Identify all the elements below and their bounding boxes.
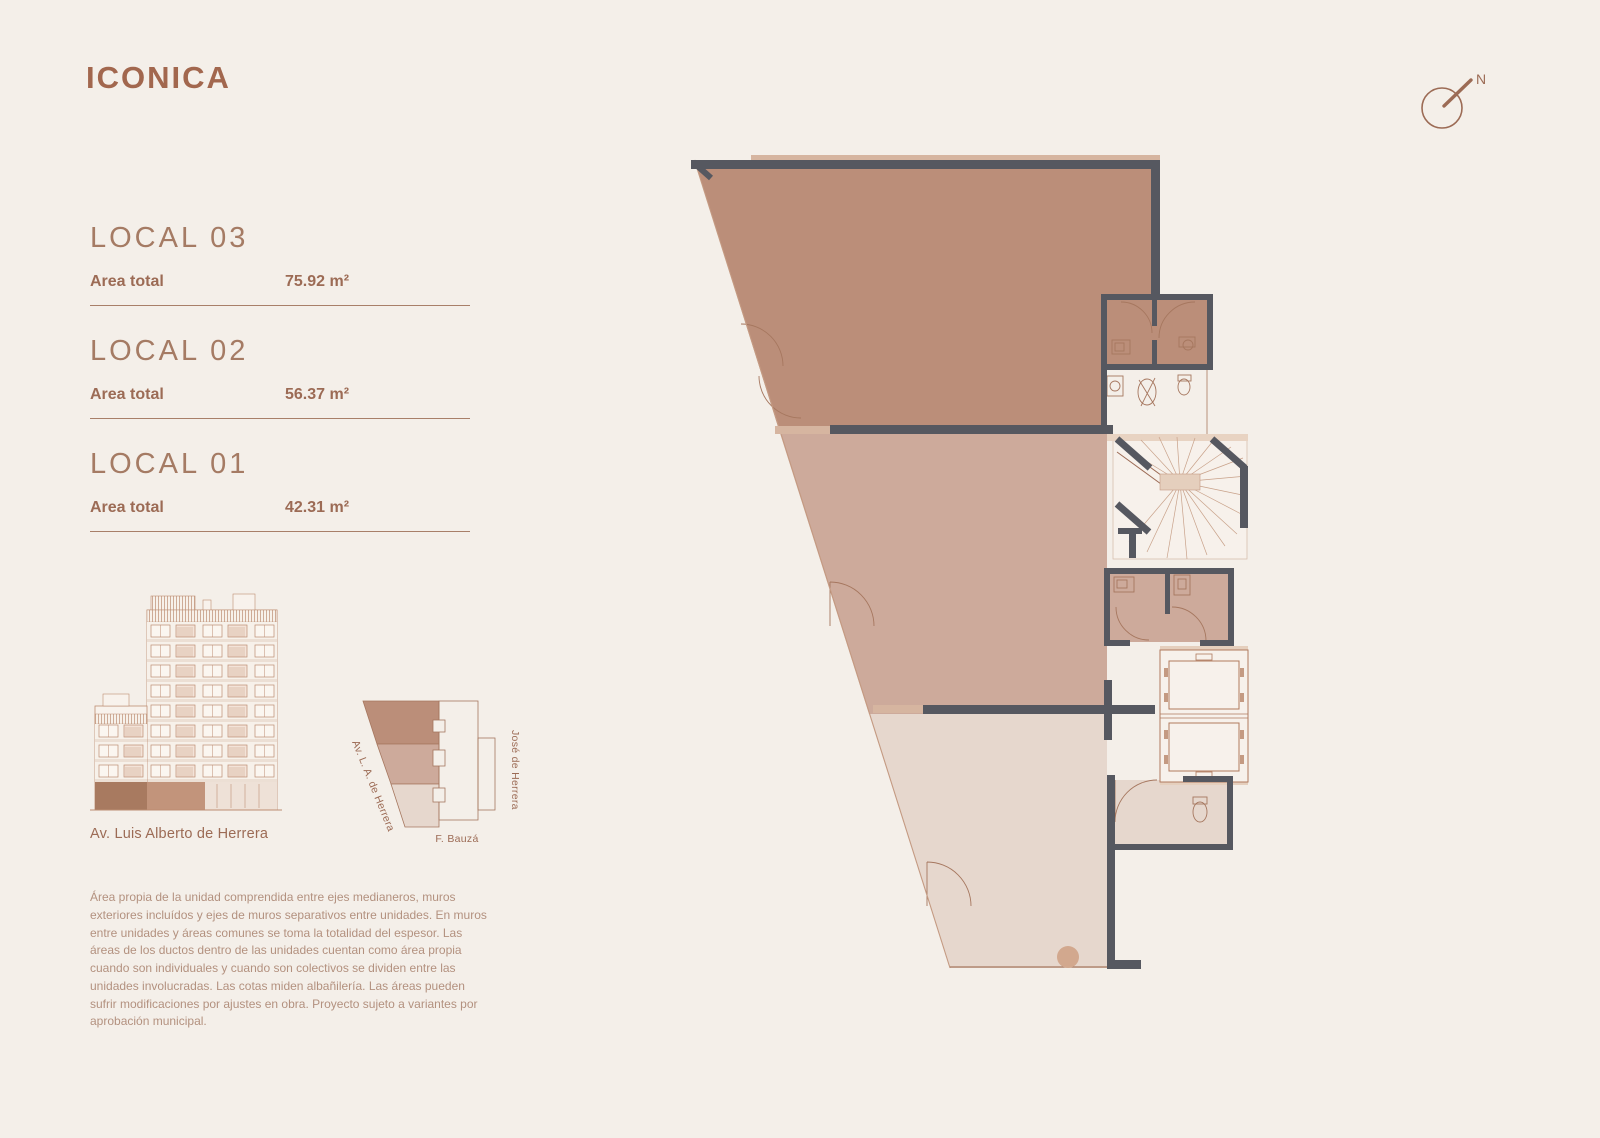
compass-needle <box>1444 80 1471 106</box>
area-row: Area total 75.92 m² <box>90 273 470 306</box>
stair-landing <box>1160 474 1200 490</box>
area-value: 75.92 m² <box>285 273 349 291</box>
street-label-right: José de Herrera <box>509 730 521 810</box>
elevators <box>1160 646 1248 785</box>
storefronts <box>95 782 277 810</box>
area-label: Area total <box>90 499 164 516</box>
local-01-area <box>869 714 1107 968</box>
local-02-area <box>779 430 1107 714</box>
elevation-caption: Av. Luis Alberto de Herrera <box>90 826 268 842</box>
area-row: Area total 56.37 m² <box>90 386 470 419</box>
area-row: Area total 42.31 m² <box>90 499 470 532</box>
site-local-03 <box>363 701 439 744</box>
local-block-03: LOCAL 03 Area total 75.92 m² <box>90 222 470 306</box>
local-title: LOCAL 02 <box>90 335 470 368</box>
area-value: 42.31 m² <box>285 499 349 517</box>
area-label: Area total <box>90 386 164 403</box>
site-local-02 <box>377 744 439 784</box>
area-value: 56.37 m² <box>285 386 349 404</box>
area-label: Area total <box>90 273 164 290</box>
local-title: LOCAL 03 <box>90 222 470 255</box>
building-elevation <box>85 566 285 844</box>
street-label-bottom: F. Bauzá <box>435 833 478 845</box>
locals-info: LOCAL 03 Area total 75.92 m² LOCAL 02 Ar… <box>90 222 470 561</box>
compass-north-label: N <box>1476 71 1486 87</box>
site-local-01 <box>391 784 439 827</box>
local-block-02: LOCAL 02 Area total 56.37 m² <box>90 335 470 419</box>
column <box>1057 946 1079 968</box>
tower-block <box>147 594 277 810</box>
site-map: Av. L. A. de Herrera José de Herrera F. … <box>338 650 533 850</box>
site-neighbor-lot <box>478 738 495 810</box>
floor-plan <box>655 148 1255 978</box>
page: { "brand": {"logo": "ICONICA"}, "locals"… <box>0 0 1600 1138</box>
local-title: LOCAL 01 <box>90 448 470 481</box>
local-03-area <box>695 162 1160 430</box>
local-block-01: LOCAL 01 Area total 42.31 m² <box>90 448 470 532</box>
disclaimer-text: Área propia de la unidad comprendida ent… <box>90 889 488 1031</box>
north-compass-icon: N <box>1414 62 1504 137</box>
brand-logo: ICONICA <box>86 60 231 96</box>
